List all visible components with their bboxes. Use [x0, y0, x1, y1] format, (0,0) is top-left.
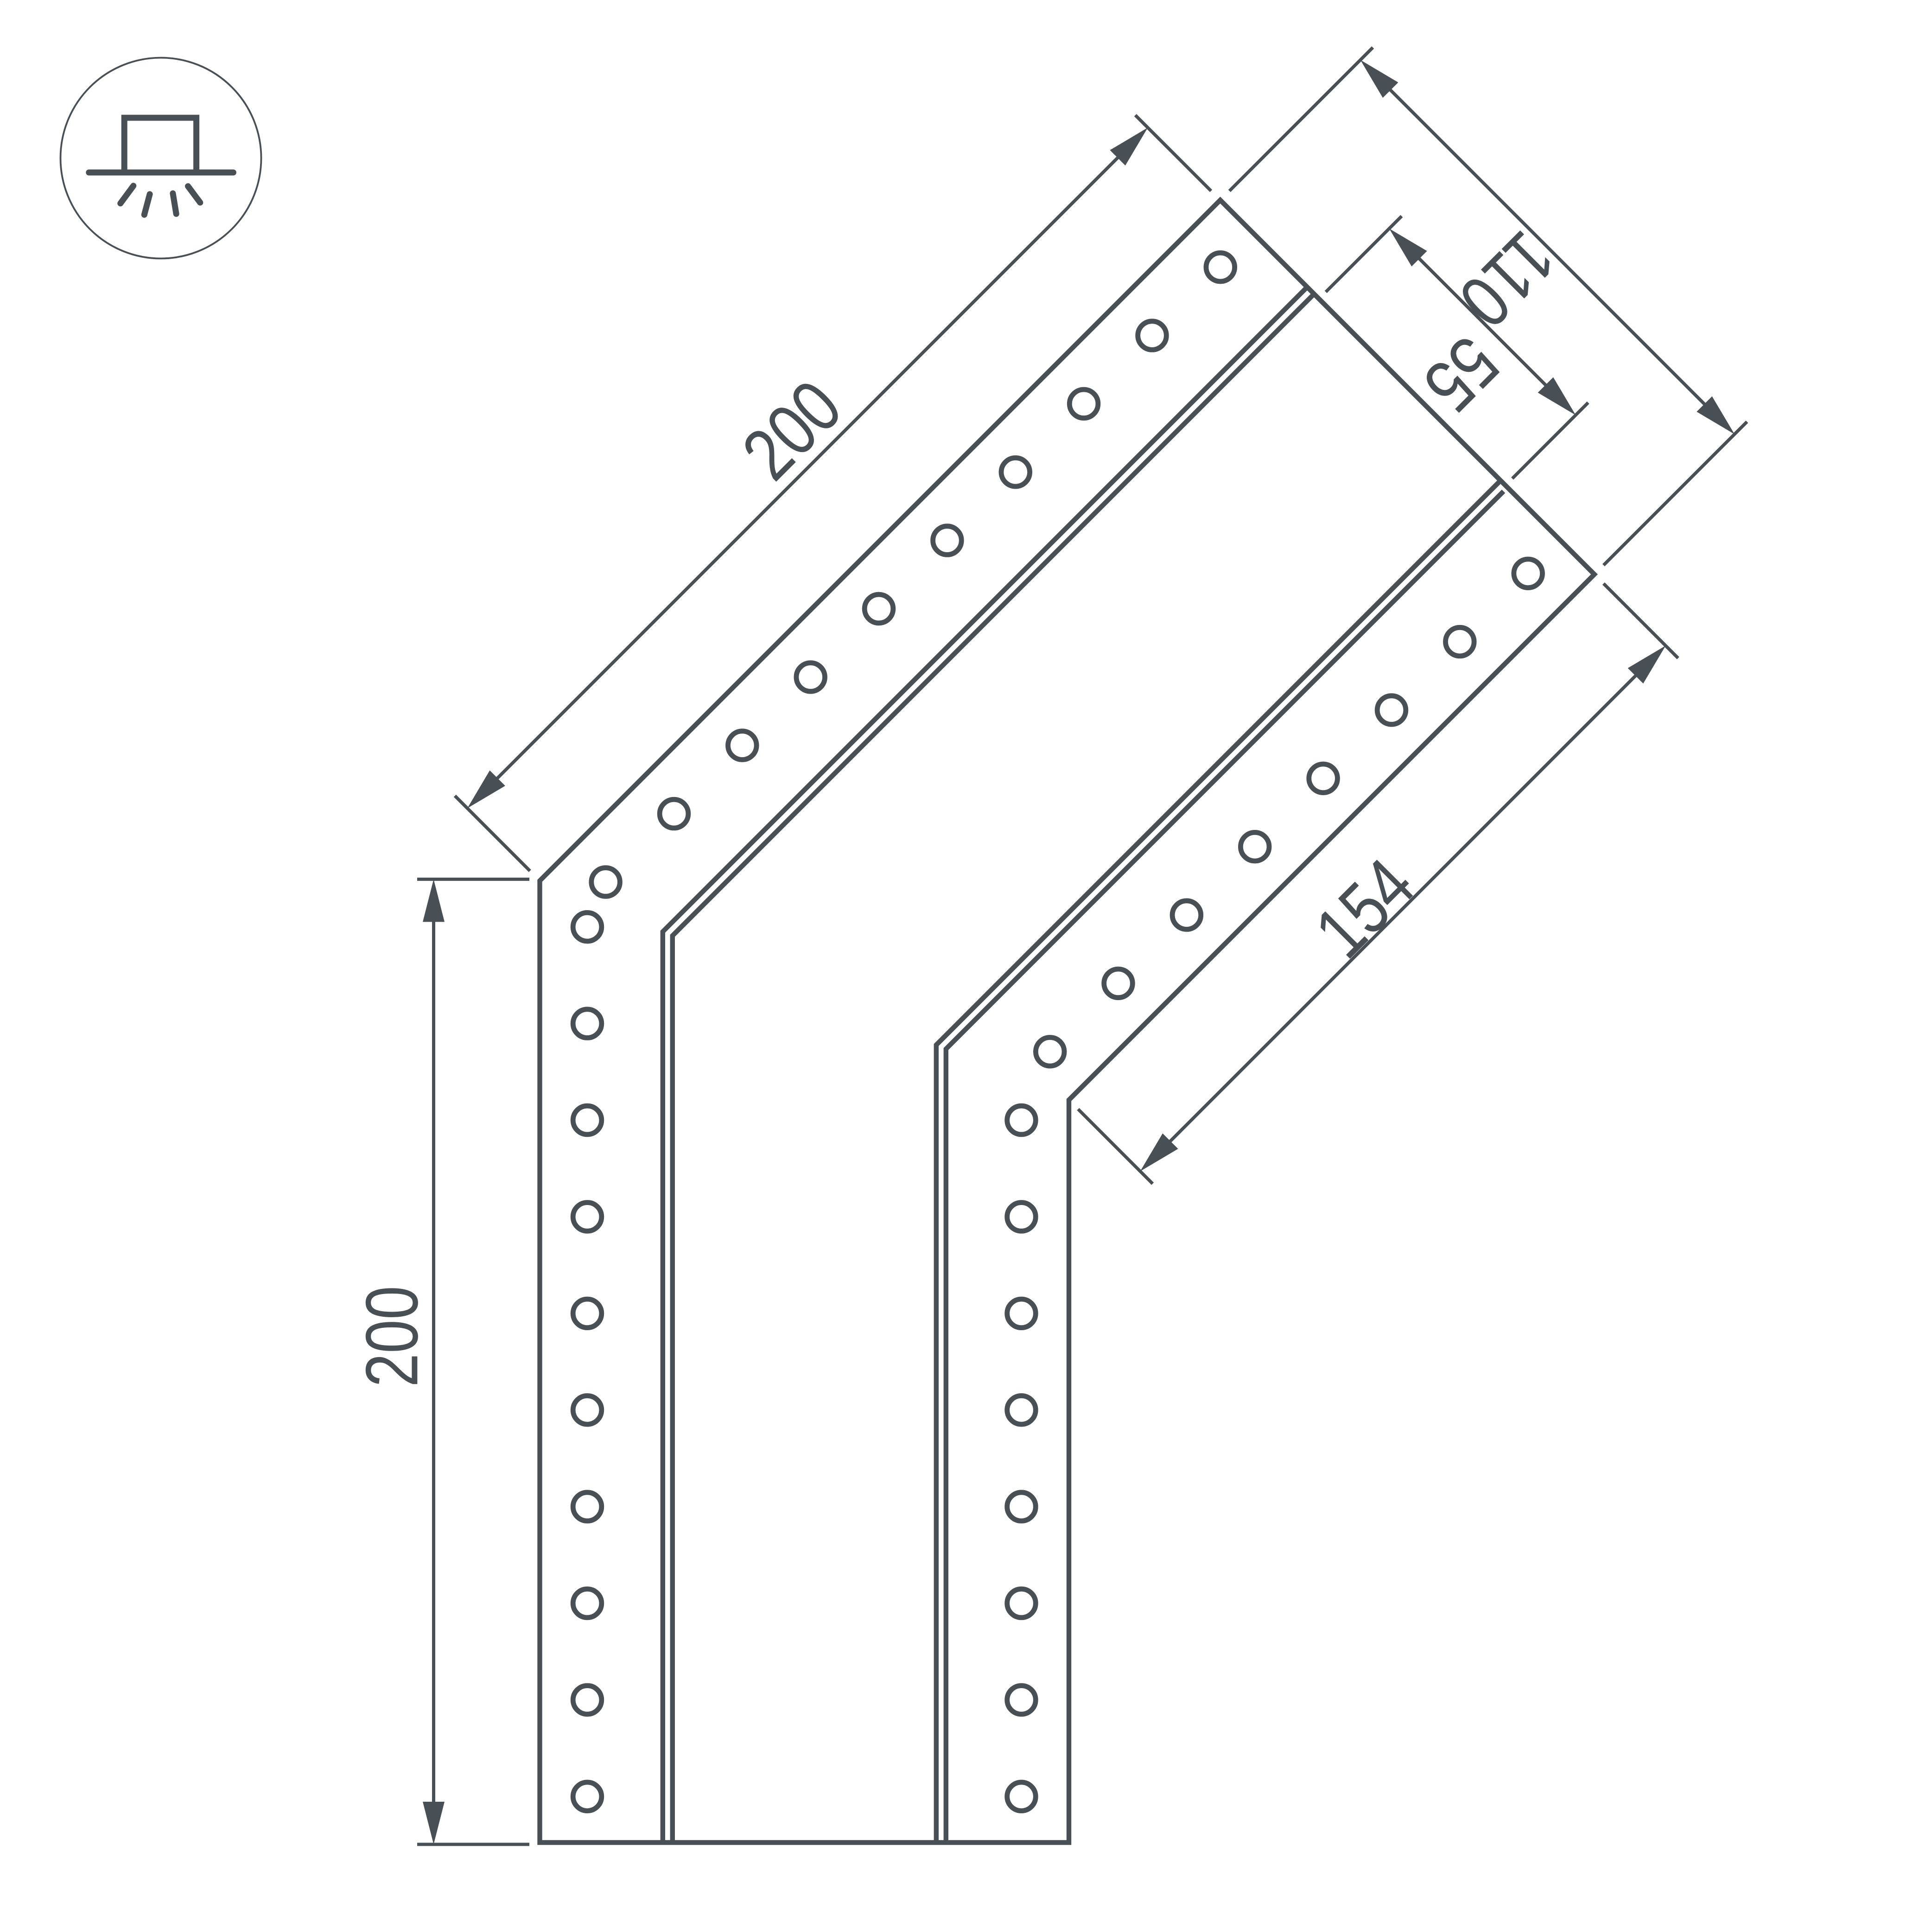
svg-text:200: 200	[727, 365, 857, 495]
svg-text:154: 154	[1299, 843, 1430, 973]
svg-text:200: 200	[350, 1286, 433, 1387]
svg-text:110: 110	[1444, 216, 1571, 343]
